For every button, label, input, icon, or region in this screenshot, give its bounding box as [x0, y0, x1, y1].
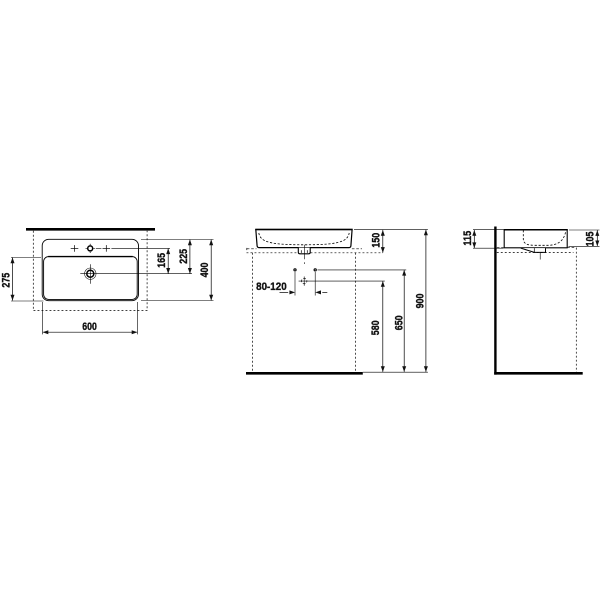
svg-text:105: 105: [584, 232, 596, 247]
svg-text:580: 580: [370, 320, 382, 335]
svg-text:225: 225: [178, 249, 190, 264]
svg-text:400: 400: [199, 263, 211, 278]
svg-text:150: 150: [370, 233, 382, 248]
svg-text:900: 900: [414, 294, 426, 309]
svg-text:600: 600: [82, 321, 97, 333]
svg-text:165: 165: [156, 253, 168, 268]
svg-text:115: 115: [462, 231, 474, 246]
svg-text:650: 650: [393, 315, 405, 330]
svg-text:80-120: 80-120: [256, 281, 287, 293]
svg-text:275: 275: [1, 273, 13, 288]
